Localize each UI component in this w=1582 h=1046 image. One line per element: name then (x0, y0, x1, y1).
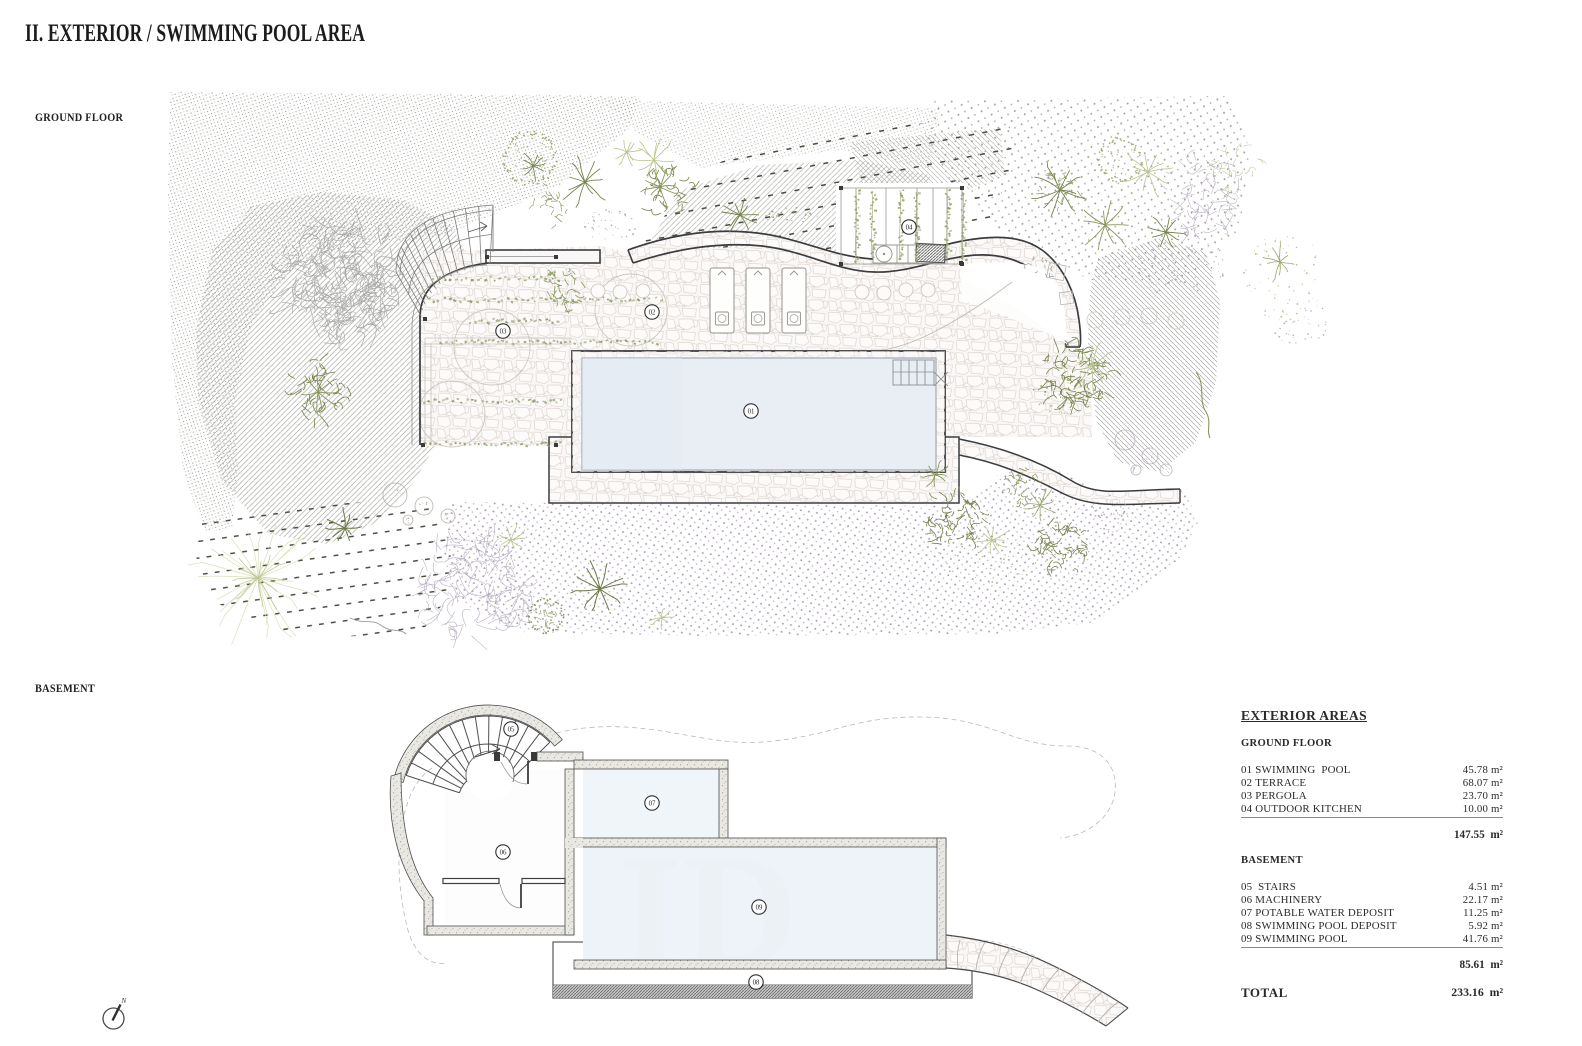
svg-text:04: 04 (906, 224, 913, 231)
svg-text:ID: ID (620, 822, 798, 1000)
svg-text:01: 01 (748, 408, 755, 415)
svg-text:03: 03 (500, 328, 507, 335)
svg-text:09: 09 (756, 904, 763, 911)
svg-text:08: 08 (753, 979, 760, 986)
svg-text:N: N (121, 997, 127, 1005)
svg-text:06: 06 (500, 849, 507, 856)
svg-text:02: 02 (649, 309, 656, 316)
svg-text:05: 05 (508, 726, 515, 733)
svg-text:07: 07 (649, 800, 656, 807)
